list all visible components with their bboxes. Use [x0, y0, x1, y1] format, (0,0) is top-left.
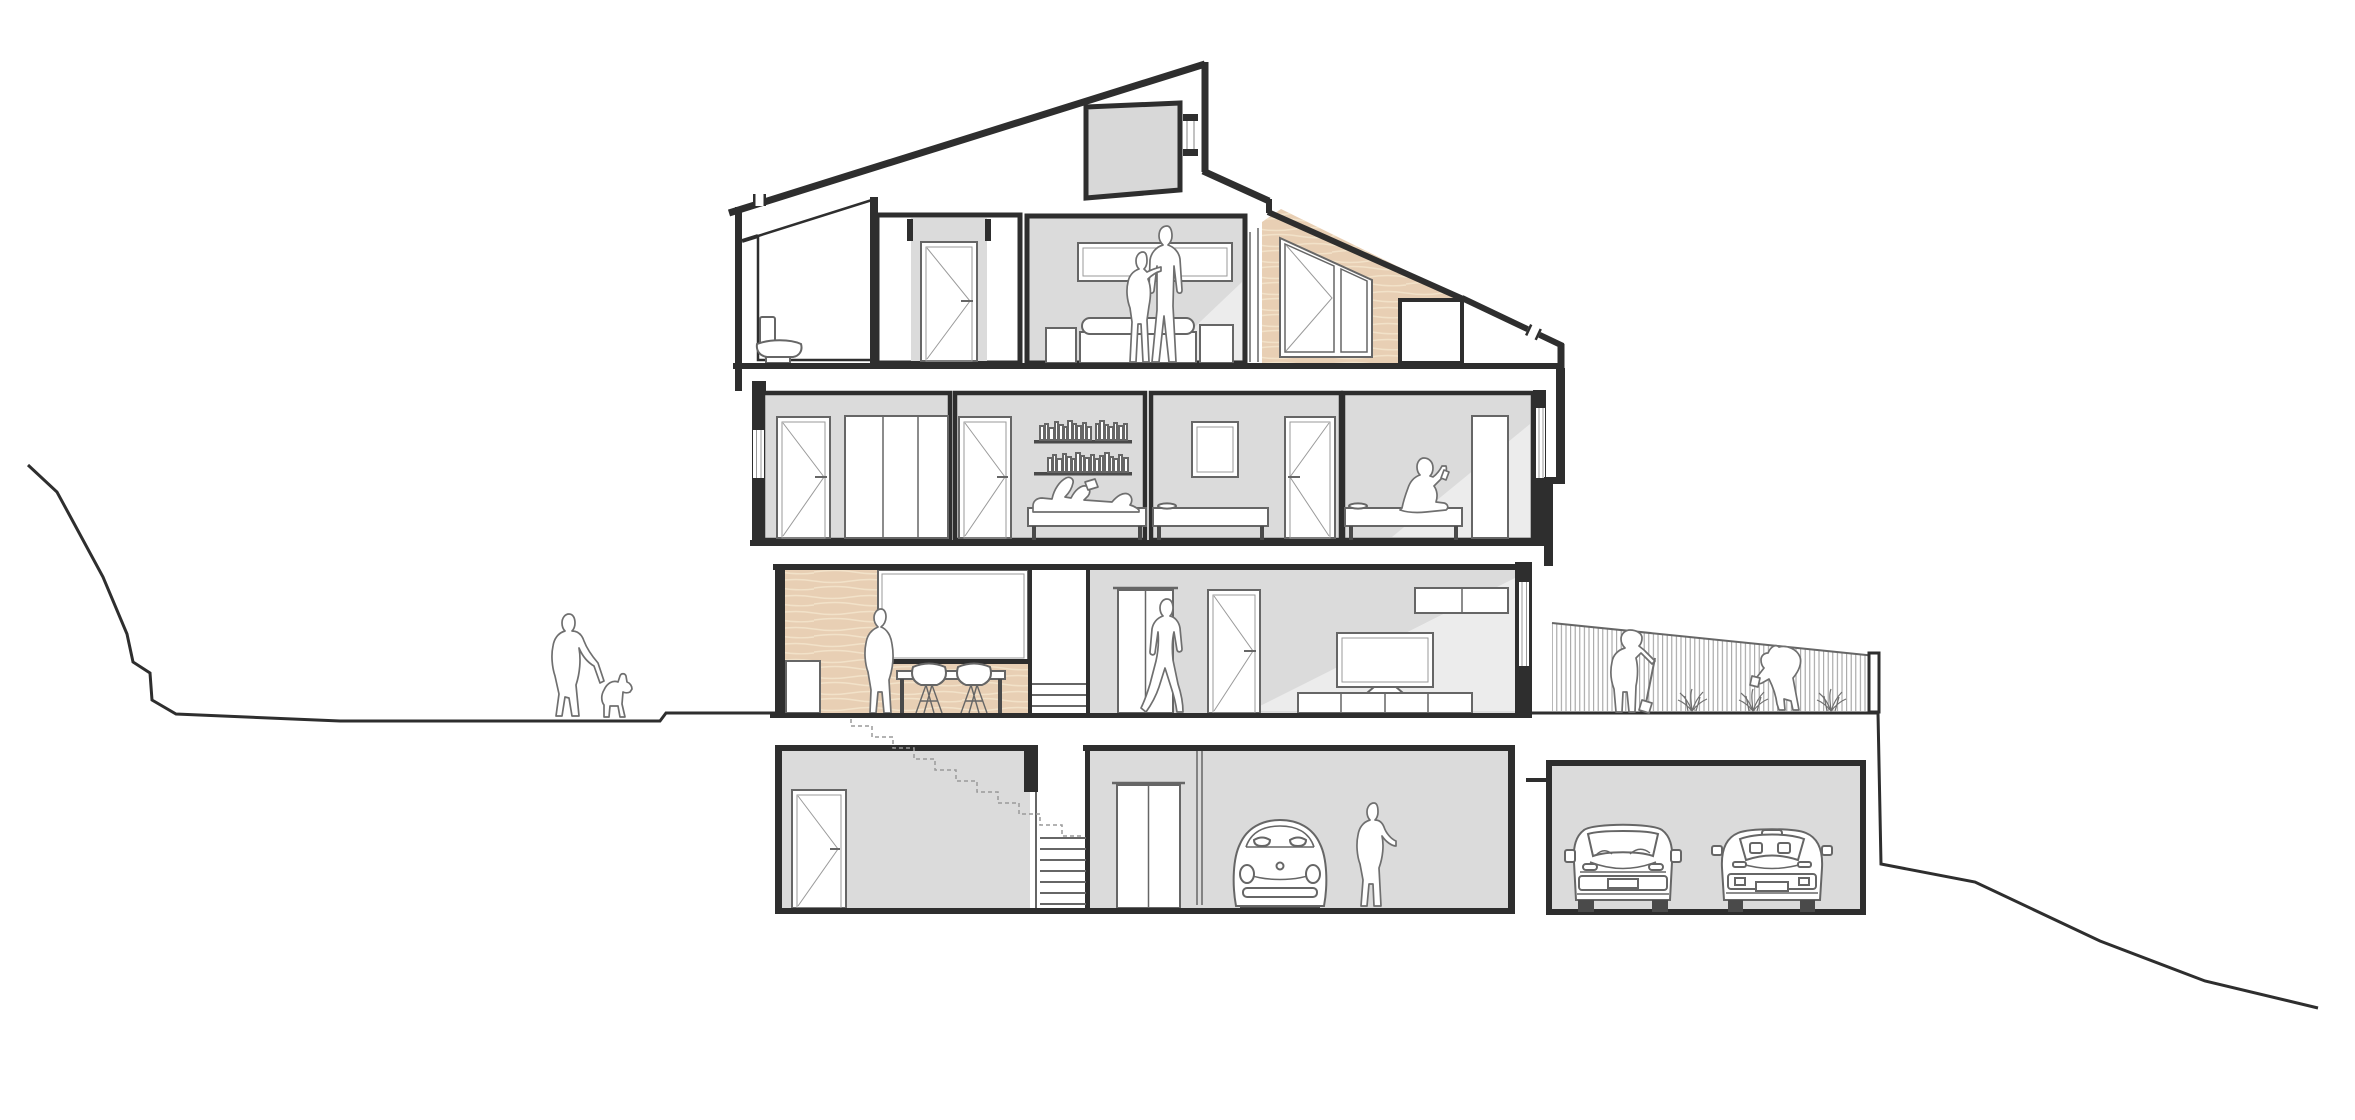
stair-void-wall — [1024, 745, 1038, 792]
attic-wall-left — [735, 207, 742, 391]
sf-wall-right — [1533, 368, 1565, 566]
attic-bedroom — [1027, 216, 1245, 363]
kitchen-counter — [786, 661, 820, 713]
second-floor — [750, 368, 1565, 566]
gf-wall-right — [1515, 562, 1532, 713]
pedestrian — [552, 614, 632, 717]
spade-blade — [1639, 700, 1652, 713]
book — [1085, 479, 1098, 490]
basement-elevator — [1112, 783, 1185, 908]
wall-cabinets — [1415, 588, 1508, 613]
gf-door — [1208, 590, 1260, 713]
attic-floor-slab — [733, 363, 1563, 369]
sf-room1-door — [777, 417, 830, 538]
gf-ceiling-slab — [773, 564, 1524, 570]
attic-hall-door — [921, 242, 977, 361]
roof-notch-left — [753, 194, 766, 206]
nightstand-right — [1200, 325, 1233, 363]
attic — [729, 62, 1563, 392]
terrain — [28, 465, 2318, 1008]
sf-room1-wardrobe — [845, 416, 948, 538]
dormer-window — [1183, 121, 1198, 149]
canvas — [0, 0, 2355, 1120]
gf-staircase — [1028, 570, 1090, 713]
sports-car — [1712, 829, 1832, 912]
sf-wall-left — [752, 390, 765, 540]
kitchen-window — [874, 570, 1030, 664]
fence-post — [1869, 653, 1879, 712]
basement-wall-left — [775, 745, 782, 914]
gf-floor-slab — [770, 713, 1532, 718]
chimney-notch — [1400, 300, 1462, 363]
beetle-car — [1234, 820, 1327, 908]
garage-connector — [1526, 778, 1550, 782]
section-drawing — [0, 0, 2355, 1120]
nightstand-left — [1046, 328, 1076, 363]
dog — [602, 674, 632, 717]
gf-wall-left — [775, 566, 785, 713]
window-mullion — [1250, 228, 1258, 362]
stair-void-right-wall — [1085, 751, 1090, 909]
tv-cabinet — [1298, 693, 1472, 713]
sf-room3-frame — [1192, 422, 1238, 477]
garden — [1552, 623, 1879, 713]
stair-void — [1038, 751, 1085, 908]
detached-garage — [1526, 763, 1863, 912]
attic-hall — [877, 215, 1020, 363]
basement-door — [792, 790, 846, 908]
basement — [775, 745, 1515, 914]
woman-walking-dog — [552, 614, 604, 716]
sf-floor-slab — [750, 540, 1546, 546]
fence-hatch — [1552, 623, 1876, 711]
sf-slab-step-left — [752, 381, 766, 392]
terrain-left — [28, 465, 776, 721]
bucket — [1750, 676, 1760, 687]
bathroom — [742, 197, 878, 363]
sf-room2-door — [959, 417, 1011, 538]
rooftop-dormer — [1086, 103, 1198, 198]
basement-floor-slab — [775, 908, 1515, 914]
sf-room3-door — [1285, 417, 1335, 538]
basement-wall-right — [1508, 745, 1515, 914]
sf-room4-wardrobe — [1472, 416, 1508, 538]
suv-car — [1565, 825, 1681, 912]
basement-ceiling-right — [1083, 745, 1515, 751]
tv — [1337, 633, 1433, 693]
